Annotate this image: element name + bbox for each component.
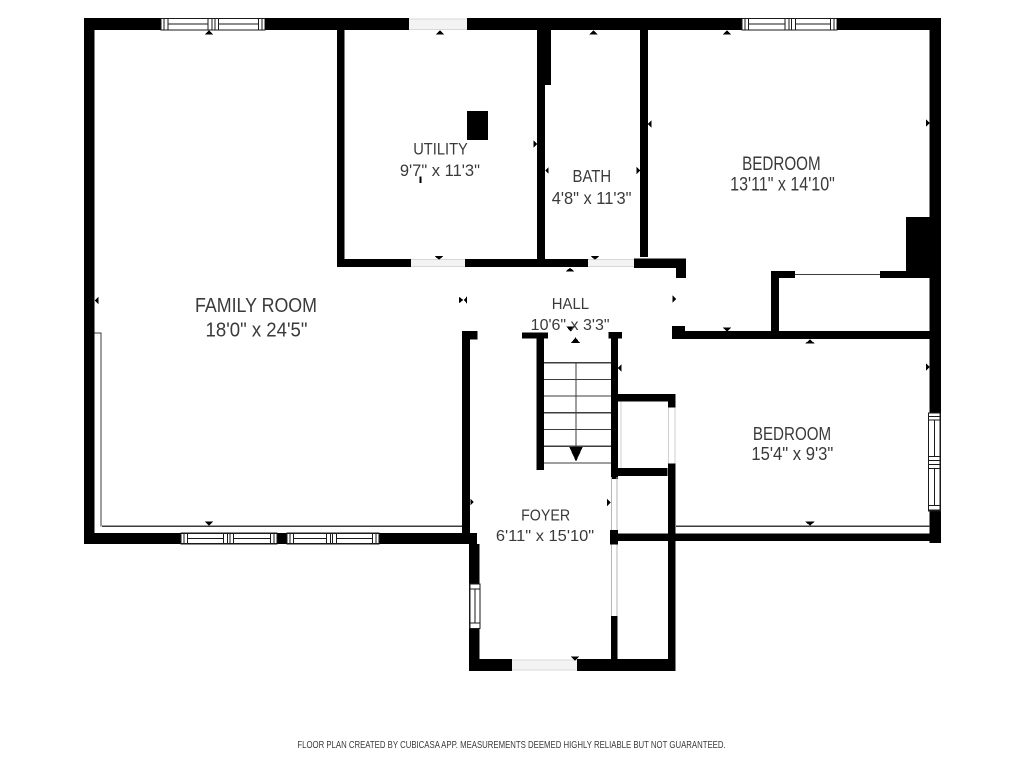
svg-text:6'11" x 15'10": 6'11" x 15'10" [496, 527, 595, 545]
svg-text:BEDROOM: BEDROOM [742, 152, 820, 174]
svg-text:13'11" x 14'10": 13'11" x 14'10" [730, 173, 835, 195]
svg-text:BATH: BATH [573, 167, 612, 186]
svg-text:FOYER: FOYER [521, 507, 570, 525]
svg-text:18'0" x 24'5": 18'0" x 24'5" [206, 320, 308, 342]
svg-text:BEDROOM: BEDROOM [753, 424, 831, 445]
svg-text:9'7" x 11'3": 9'7" x 11'3" [400, 162, 480, 180]
svg-text:FAMILY ROOM: FAMILY ROOM [195, 295, 317, 317]
svg-text:UTILITY: UTILITY [413, 141, 468, 159]
svg-text:4'8" x 11'3": 4'8" x 11'3" [552, 189, 632, 209]
svg-text:HALL: HALL [552, 295, 590, 313]
svg-text:10'6" x 3'3": 10'6" x 3'3" [531, 317, 610, 334]
svg-text:15'4" x 9'3": 15'4" x 9'3" [751, 443, 833, 464]
svg-text:FLOOR PLAN CREATED BY CUBICASA: FLOOR PLAN CREATED BY CUBICASA APP. MEAS… [297, 739, 725, 750]
